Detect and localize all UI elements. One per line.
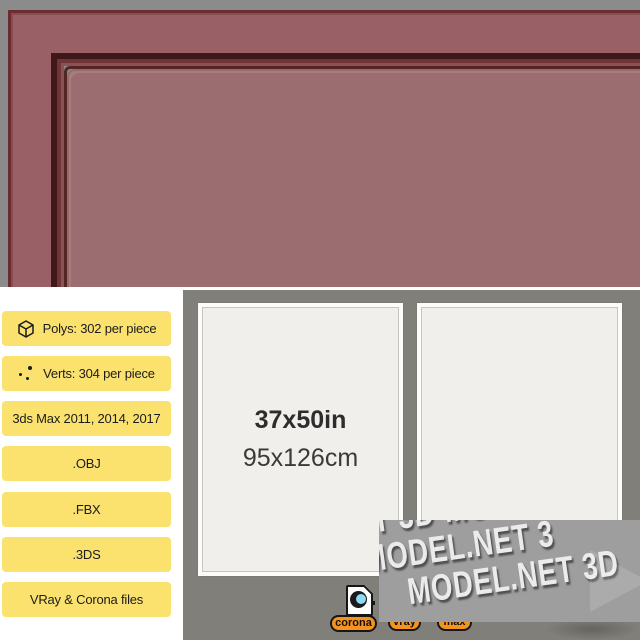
corona-renderer-file-icon: [346, 585, 373, 616]
frame-moulding-profile: [8, 10, 640, 287]
file-notch: [371, 601, 375, 605]
size-inches-label: 37x50in: [255, 406, 347, 435]
product-preview-card: Polys: 302 per piece Verts: 304 per piec…: [0, 0, 640, 640]
page-fold-icon: [364, 585, 373, 594]
corona-tag-label: corona: [335, 618, 372, 629]
size-frame-matte: 37x50in 95x126cm: [202, 307, 399, 572]
badge-3ds-label: .3DS: [72, 547, 100, 562]
verts-icon: [18, 365, 35, 382]
cube-icon: [17, 320, 35, 338]
badge-polys-label: Polys: 302 per piece: [43, 321, 157, 336]
size-cm-label: 95x126cm: [243, 444, 358, 473]
badge-3dsmax-versions: 3ds Max 2011, 2014, 2017: [2, 401, 171, 436]
corona-swirl-core: [356, 594, 366, 604]
badge-renderer-files: VRay & Corona files: [2, 582, 171, 617]
badge-obj-format: .OBJ: [2, 446, 171, 481]
badge-verts-label: Verts: 304 per piece: [43, 366, 155, 381]
badge-fbx-label: .FBX: [72, 502, 100, 517]
corona-tag: corona: [330, 615, 377, 632]
badge-fbx-format: .FBX: [2, 492, 171, 527]
size-frame-labeled: 37x50in 95x126cm: [198, 303, 403, 576]
badge-3dsmax-label: 3ds Max 2011, 2014, 2017: [12, 411, 160, 426]
badge-3ds-format: .3DS: [2, 537, 171, 572]
badge-renderer-files-label: VRay & Corona files: [30, 592, 143, 607]
badge-verts: Verts: 304 per piece: [2, 356, 171, 391]
badge-obj-label: .OBJ: [72, 456, 100, 471]
watermark-3d-model-net: ET 3D-MODEL.N 3D-MODEL.NET 3 MODEL.NET 3…: [379, 520, 640, 622]
size-preview-panel: 37x50in 95x126cm ET 3D-MODEL.N 3D-MODEL.…: [183, 290, 640, 640]
badge-polys: Polys: 302 per piece: [2, 311, 171, 346]
frame-corner-render: [0, 0, 640, 287]
